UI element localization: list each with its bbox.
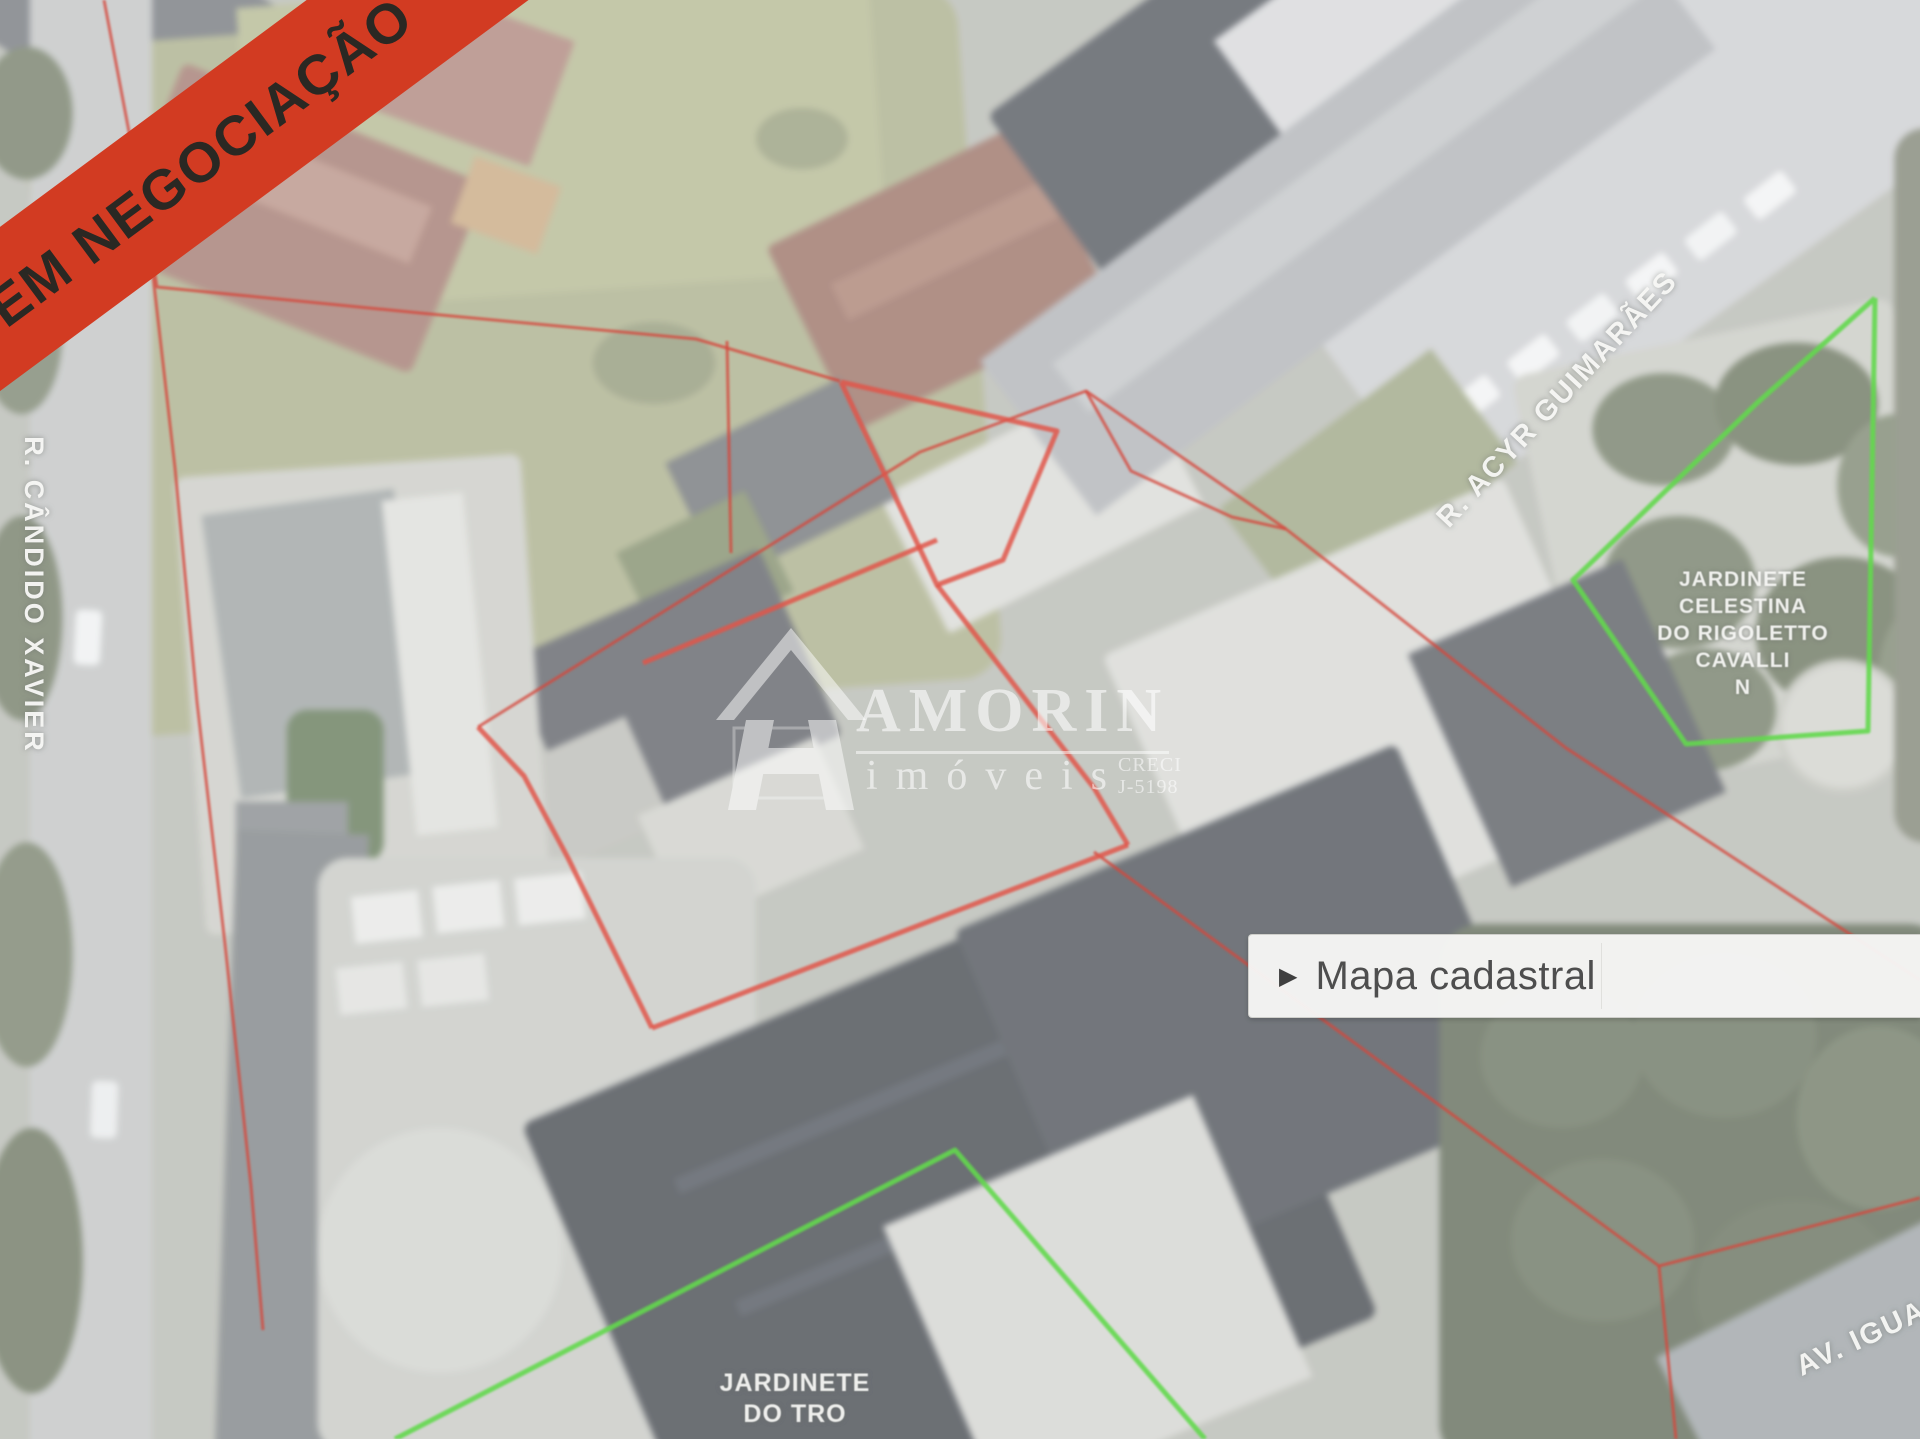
area-label-line: JARDINETE xyxy=(1638,566,1848,593)
expand-arrow-icon[interactable]: ▶ xyxy=(1279,962,1297,991)
area-label-line: CAVALLI xyxy=(1638,647,1848,674)
area-label-line: DO RIGOLETTO xyxy=(1638,620,1848,647)
area-label-line: N xyxy=(1638,674,1848,701)
map-layer-label-bar[interactable]: ▶ Mapa cadastral xyxy=(1248,934,1920,1018)
bar-divider xyxy=(1601,943,1602,1009)
street-label-candido-xavier: R. CÂNDIDO XAVIER xyxy=(19,415,49,775)
cadastral-map-image: R. CÂNDIDO XAVIER R. ACYR GUIMARÃES AV. … xyxy=(0,0,1920,1439)
area-label-jardinete-bottom: JARDINETE DO TRO xyxy=(695,1368,895,1430)
area-label-line: JARDINETE xyxy=(695,1368,895,1399)
amorin-a-house-logo-icon xyxy=(716,628,866,810)
watermark-subtitle: imóveis xyxy=(866,752,1125,800)
area-label-line: DO TRO xyxy=(695,1399,895,1430)
area-label-jardinete-celestina: JARDINETE CELESTINA DO RIGOLETTO CAVALLI… xyxy=(1638,566,1848,701)
map-layer-label: Mapa cadastral xyxy=(1315,954,1595,999)
creci-line: CRECI xyxy=(1118,754,1182,776)
creci-line: J-5198 xyxy=(1118,776,1182,798)
watermark-brand: AMORIN xyxy=(856,676,1169,754)
watermark-creci: CRECI J-5198 xyxy=(1118,754,1182,798)
area-label-line: CELESTINA xyxy=(1638,593,1848,620)
